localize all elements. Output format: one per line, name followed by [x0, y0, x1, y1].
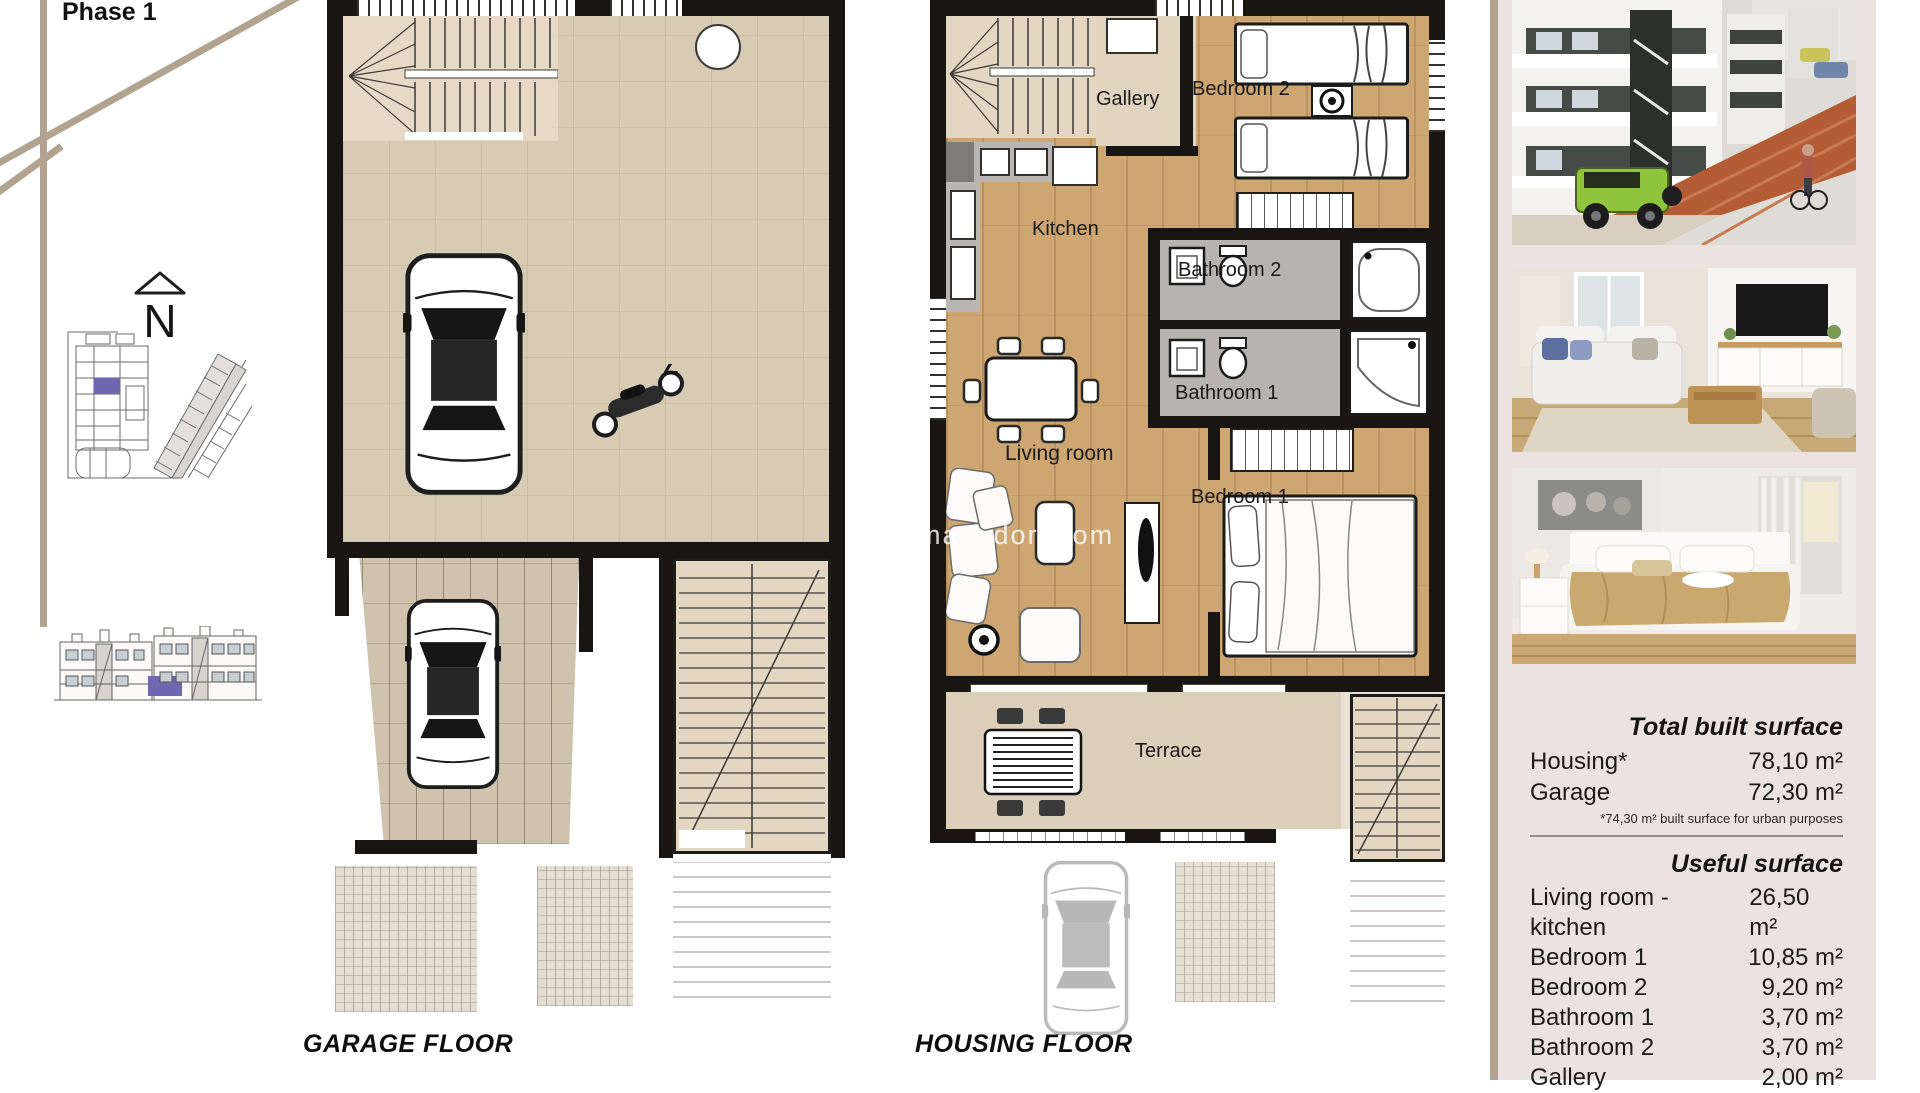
built-surface-title: Total built surface — [1530, 712, 1843, 742]
housing-switchback-stairs — [1350, 694, 1445, 862]
useful-surface-title: Useful surface — [1530, 849, 1843, 879]
room-label-bathroom2: Bathroom 2 — [1178, 259, 1281, 282]
garage-switchback-stairs — [673, 558, 831, 854]
surface-row-value: 10,85 m² — [1748, 943, 1843, 973]
terrace-railing — [1160, 832, 1245, 841]
bedroom-render-photo — [1512, 468, 1856, 664]
terrace-table — [975, 708, 1091, 828]
car-icon — [405, 598, 501, 790]
housing-floor-plan: Gallery Bedroom 2 Kitchen Bathroom 2 Bat… — [930, 0, 1445, 1015]
housing-floor-title: HOUSING FLOOR — [915, 1030, 1133, 1059]
bathtub — [1350, 240, 1429, 320]
room-label-bedroom2: Bedroom 2 — [1192, 78, 1290, 101]
corner-shower — [1348, 329, 1429, 416]
room-label-bedroom1: Bedroom 1 — [1191, 486, 1289, 509]
bedroom2-wardrobe — [1236, 192, 1354, 232]
kitchen-island — [1052, 146, 1098, 186]
phase-title: Phase 1 — [62, 0, 157, 27]
bedroom2-beds — [1234, 18, 1429, 190]
surface-row: Housing* 78,10 m² — [1530, 746, 1843, 777]
ghost-stairs — [1350, 872, 1445, 1002]
room-label-living-room: Living room — [1005, 442, 1114, 466]
room-label-terrace: Terrace — [1135, 740, 1202, 763]
surface-row-label: Gallery — [1530, 1063, 1606, 1093]
surface-row-label: Bathroom 1 — [1530, 1003, 1654, 1033]
garage-main-room — [327, 0, 845, 558]
kitchen-appliance — [950, 190, 976, 240]
housing-main-unit: Gallery Bedroom 2 Kitchen Bathroom 2 Bat… — [930, 0, 1445, 692]
garage-window — [610, 0, 682, 16]
dining-table — [954, 332, 1106, 448]
surface-row-value: 72,30 m² — [1748, 777, 1843, 808]
ghost-hatch — [537, 866, 633, 1006]
ghost-hatch — [335, 866, 477, 1012]
surface-row-value: 9,20 m² — [1762, 973, 1843, 1003]
garage-floor-plan — [327, 0, 845, 1015]
garage-column — [695, 24, 741, 70]
garage-window — [357, 0, 575, 16]
housing-stairs — [946, 16, 1096, 138]
elevation-drawing — [52, 626, 264, 706]
surface-row-value: 3,70 m² — [1762, 1033, 1843, 1063]
kitchen-counter-corner — [946, 142, 974, 182]
surface-row: Bathroom 1 3,70 m² — [1530, 1003, 1843, 1033]
room-label-kitchen: Kitchen — [1032, 218, 1099, 241]
ghost-car — [1042, 860, 1130, 1036]
site-plan — [60, 328, 252, 486]
surface-row-value: 2,00 m² — [1762, 1063, 1843, 1093]
exterior-render-photo — [1512, 0, 1856, 245]
site-plan-highlighted-unit — [94, 378, 120, 394]
surface-row-label: Bedroom 2 — [1530, 973, 1647, 1003]
garage-stairs — [343, 16, 558, 141]
surface-summary: Total built surface Housing* 78,10 m² Ga… — [1498, 712, 1876, 1080]
bathroom1-fixtures — [1168, 336, 1278, 380]
gallery-appliance — [1106, 18, 1158, 54]
ghost-hatch — [1175, 862, 1275, 1002]
entry-door-handle — [1138, 518, 1154, 582]
surface-row-label: Bedroom 1 — [1530, 943, 1647, 973]
surface-row-value: 26,50 m² — [1749, 883, 1843, 943]
bedroom1-bed — [1222, 492, 1422, 660]
kitchen-appliance — [950, 246, 976, 300]
motorcycle-icon — [578, 364, 698, 444]
surface-row-label: Bathroom 2 — [1530, 1033, 1654, 1063]
car-icon — [403, 252, 525, 496]
surface-row-label: Housing* — [1530, 746, 1627, 777]
bedroom1-wardrobe — [1230, 428, 1354, 472]
living-room-render-photo — [1512, 268, 1856, 452]
surface-row: Gallery 2,00 m² — [1530, 1063, 1843, 1093]
sidebar-divider-line — [1490, 0, 1498, 1080]
housing-window — [1155, 0, 1243, 16]
kitchen-sink — [980, 148, 1010, 176]
surface-row: Bedroom 2 9,20 m² — [1530, 973, 1843, 1003]
divider — [1530, 835, 1843, 837]
terrace-railing — [975, 832, 1125, 841]
surface-row-label: Garage — [1530, 777, 1610, 808]
room-label-bathroom1: Bathroom 1 — [1175, 382, 1278, 405]
corner-line-vertical — [40, 0, 47, 627]
surface-row: Bedroom 1 10,85 m² — [1530, 943, 1843, 973]
housing-window — [1429, 40, 1445, 132]
room-label-gallery: Gallery — [1096, 88, 1159, 111]
ghost-stairs — [673, 862, 831, 998]
kitchen-hob — [1014, 148, 1048, 176]
built-surface-note: *74,30 m² built surface for urban purpos… — [1530, 811, 1843, 827]
surface-row: Garage 72,30 m² — [1530, 777, 1843, 808]
housing-window — [930, 298, 946, 420]
watermark: ma dor om — [918, 520, 1114, 551]
surface-row-value: 78,10 m² — [1748, 746, 1843, 777]
surface-row-value: 3,70 m² — [1762, 1003, 1843, 1033]
sofa — [946, 468, 1086, 678]
north-triangle-icon — [132, 270, 188, 296]
surface-row: Living room - kitchen 26,50 m² — [1530, 883, 1843, 943]
surface-row-label: Living room - kitchen — [1530, 883, 1749, 943]
surface-row: Bathroom 2 3,70 m² — [1530, 1033, 1843, 1063]
garage-floor-title: GARAGE FLOOR — [303, 1030, 513, 1059]
